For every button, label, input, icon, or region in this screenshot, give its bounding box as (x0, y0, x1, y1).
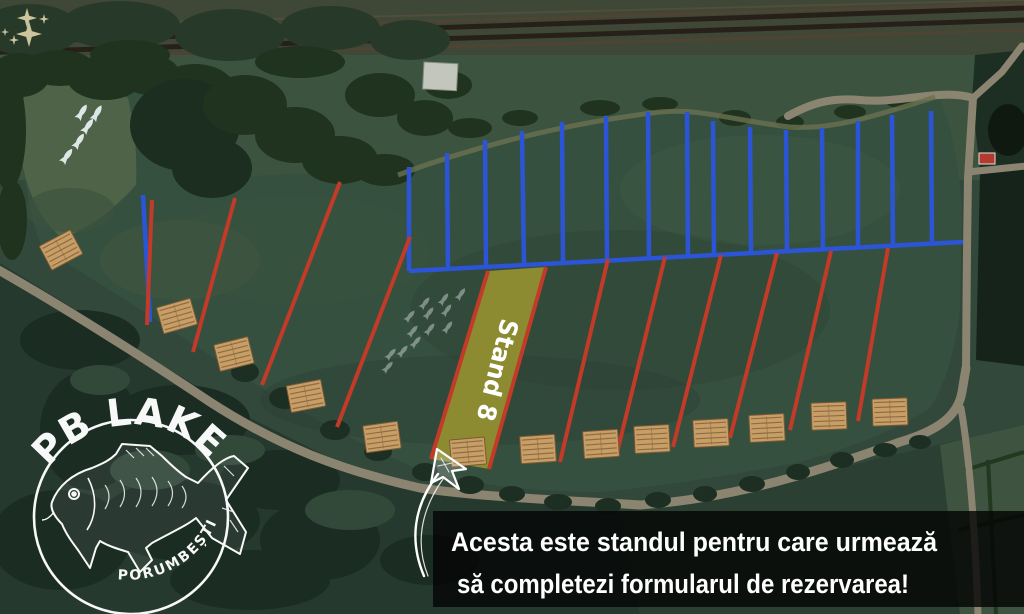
callout: Acesta este standul pentru care urmează … (433, 511, 1024, 607)
small-red-building (979, 153, 995, 164)
platform-icon (811, 402, 847, 430)
platform-icon (583, 429, 620, 458)
stand-divider-blue (892, 115, 893, 246)
stand-divider-blue (687, 112, 688, 257)
stand-divider-blue (786, 130, 787, 252)
callout-line-2: să completezi formularul de rezervarea! (457, 569, 909, 599)
platform-icon (520, 434, 557, 463)
stand-divider-blue (750, 127, 751, 254)
platform-icon (634, 425, 670, 454)
platform-icon (693, 419, 729, 448)
stand-divider-blue (822, 128, 823, 250)
platform-icon (363, 421, 401, 453)
platform-icon (872, 398, 908, 426)
east-pond (976, 166, 1024, 366)
stand-divider-blue (562, 122, 563, 263)
platform-icon (749, 414, 785, 443)
callout-line-1: Acesta este standul pentru care urmează (451, 527, 938, 557)
stand-divider-blue (606, 116, 607, 261)
stand-divider-blue (447, 153, 448, 269)
stand-divider-blue (522, 131, 524, 265)
building (423, 62, 458, 91)
stand-divider-blue (648, 112, 649, 259)
stand-divider-blue (713, 121, 714, 256)
reservation-map: Stand 8 PB LAKE PORUMBEȘTI (0, 0, 1024, 614)
stand-divider-blue (931, 111, 932, 244)
stand-divider-blue (485, 140, 486, 267)
